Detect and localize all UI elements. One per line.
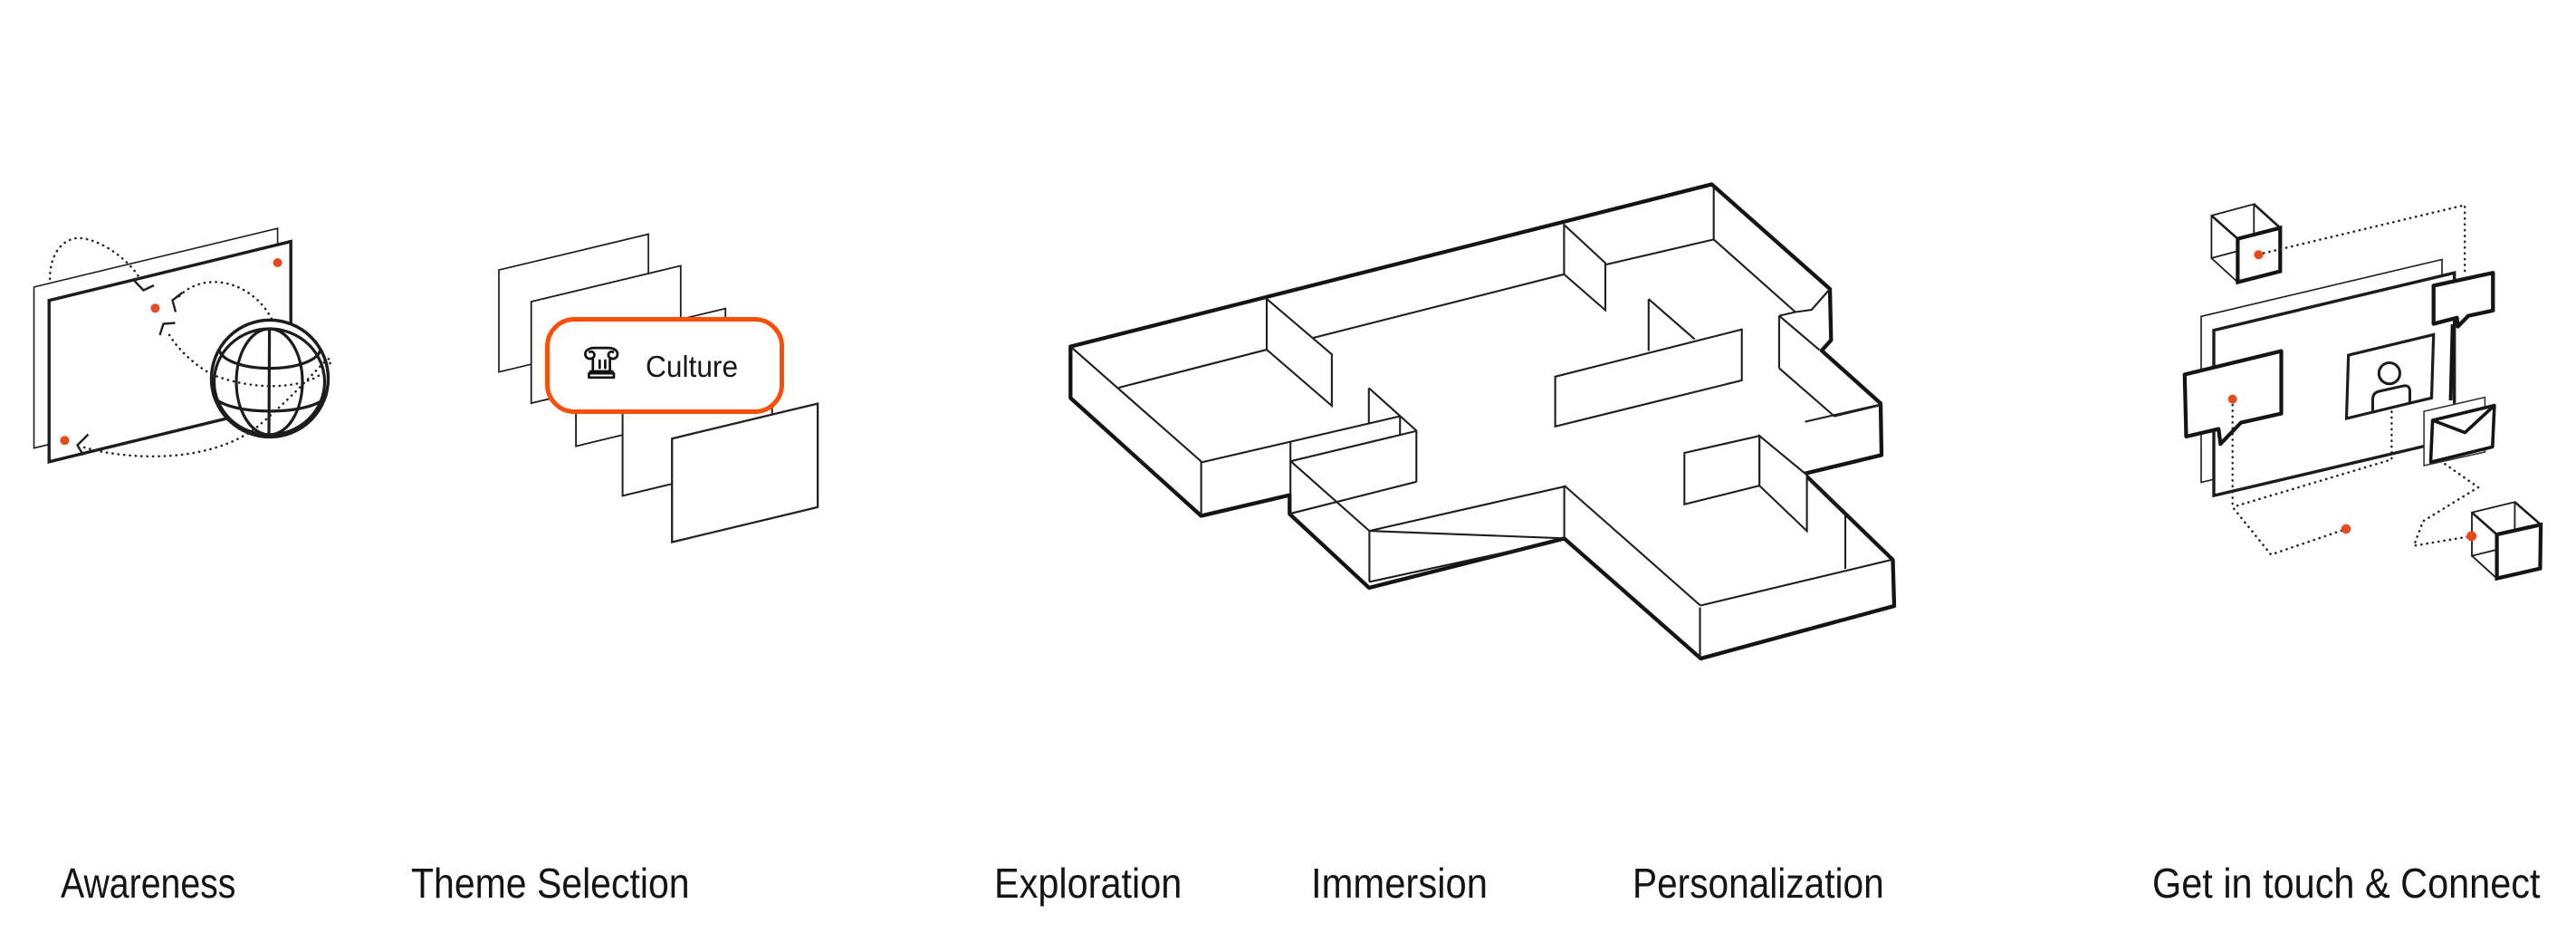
svg-text:Culture: Culture xyxy=(646,349,738,383)
